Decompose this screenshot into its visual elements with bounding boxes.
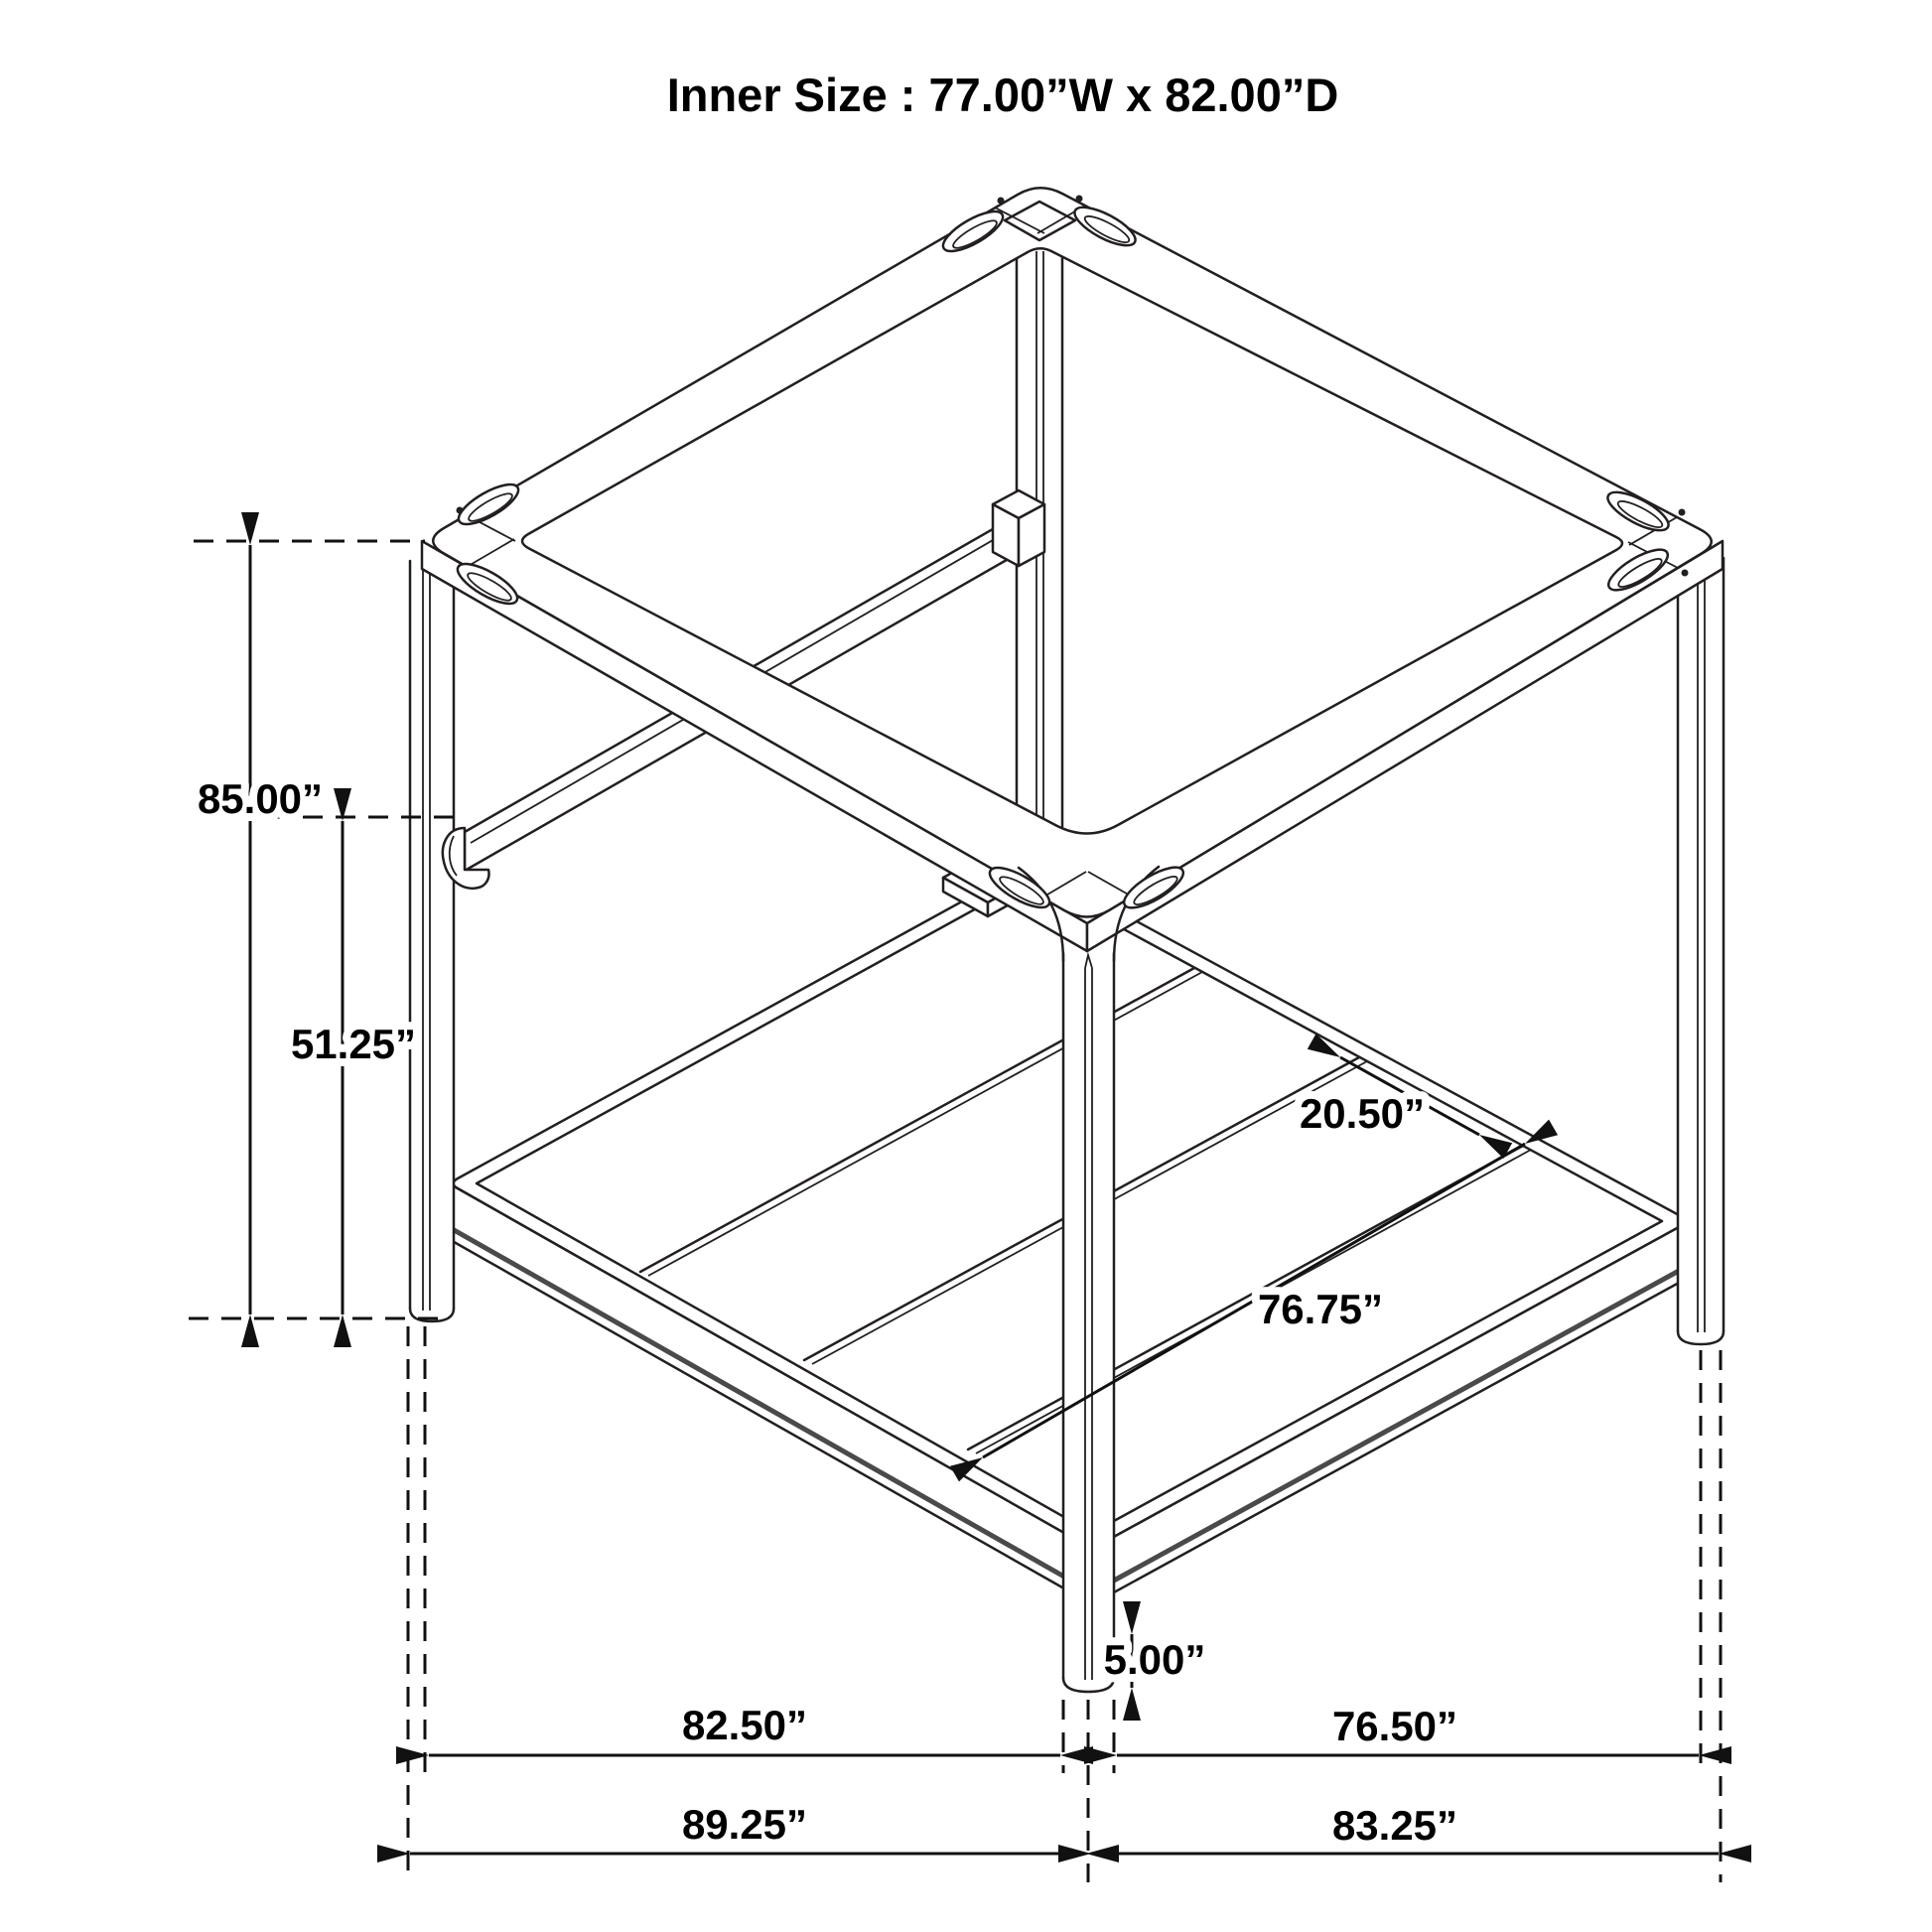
dimension-label-slat-spacing: 20.50” bbox=[1300, 1090, 1425, 1137]
dimension-label-side-a-outer: 89.25” bbox=[682, 1801, 807, 1848]
dimension-label-side-b-inner: 76.50” bbox=[1332, 1703, 1457, 1749]
diagram-title: Inner Size : 77.00”W x 82.00”D bbox=[667, 69, 1339, 121]
dimension-label-overall-height: 85.00” bbox=[198, 775, 323, 822]
canopy-frame bbox=[422, 188, 1723, 951]
dimension-label-rail-height: 51.25” bbox=[291, 1021, 416, 1067]
bed-frame-dimension-diagram: Inner Size : 77.00”W x 82.00”D bbox=[0, 0, 1932, 1932]
post-right bbox=[1678, 554, 1724, 1344]
post-back bbox=[1017, 246, 1062, 884]
post-front bbox=[1063, 923, 1114, 1692]
dimension-label-slat-length: 76.75” bbox=[1258, 1286, 1383, 1332]
dimension-label-side-b-outer: 83.25” bbox=[1332, 1802, 1457, 1849]
dimension-label-side-a-inner: 82.50” bbox=[682, 1702, 807, 1748]
dimension-label-ground-clearance: 5.00” bbox=[1104, 1636, 1206, 1683]
